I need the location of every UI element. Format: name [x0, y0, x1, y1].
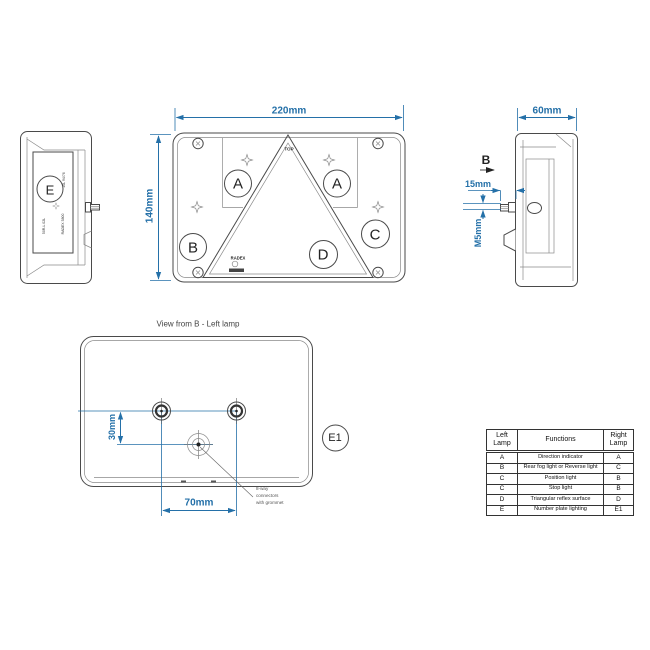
front-height-dimension-label: 140mm — [145, 189, 156, 223]
header-left-lamp: Left Lamp — [487, 430, 518, 452]
function-name: Triangular reflex surface — [518, 495, 604, 506]
mounting-stud-right-view — [501, 203, 516, 213]
connector-note-line: 8-way — [256, 486, 268, 491]
brand-label: RADEX — [231, 256, 246, 261]
dimension-m5 — [463, 194, 501, 219]
table-row: A Direction indicator A — [487, 452, 634, 464]
connector-note-line: connectors — [256, 493, 278, 498]
right-lamp-code: B — [604, 474, 634, 485]
table-row: D Triangular reflex surface D — [487, 495, 634, 506]
header-functions: Functions — [518, 430, 604, 452]
header-right-lamp: Right Lamp — [604, 430, 634, 452]
offset-dimension-label: 30mm — [107, 414, 117, 440]
right-lamp-code: B — [604, 484, 634, 495]
zone-label-d: D — [318, 247, 329, 264]
e1-mark-label: E1 — [328, 432, 341, 444]
zone-label-b: B — [188, 240, 198, 257]
spacing-dimension-label: 70mm — [185, 498, 214, 509]
technical-drawing-page: 220mm 140mm TOP A A B C D RADEX E 10L 94… — [0, 0, 650, 650]
left-lamp-code: A — [487, 452, 518, 464]
thread-dimension-label: M5mm — [473, 219, 483, 248]
function-name: Stop light — [518, 484, 604, 495]
table-row: E Number plate lighting E1 — [487, 505, 634, 516]
approval-marking: 10L 94/76 — [62, 172, 66, 187]
approval-marking: RADEX 5800 — [61, 214, 65, 235]
depth-dimension-label: 60mm — [533, 106, 562, 117]
drawing-lineart — [0, 0, 650, 650]
view-from-b — [78, 337, 349, 517]
table-row: B Rear fog light or Reverse light C — [487, 463, 634, 474]
view-from-b-title: View from B - Left lamp — [157, 320, 240, 329]
connector-note-line: with grommet — [256, 500, 284, 505]
right-side-view — [463, 108, 578, 287]
left-lamp-code: D — [487, 495, 518, 506]
stud-length-dimension-label: 15mm — [465, 179, 491, 189]
top-marker-label: TOP — [284, 147, 293, 152]
front-width-dimension-label: 220mm — [272, 106, 306, 117]
function-name: Number plate lighting — [518, 505, 604, 516]
right-lamp-code: A — [604, 452, 634, 464]
table-header-row: Left Lamp Functions Right Lamp — [487, 430, 634, 452]
right-lamp-code: D — [604, 495, 634, 506]
left-lamp-code: E — [487, 505, 518, 516]
mounting-stud-left-view — [86, 203, 100, 213]
right-lamp-code: E1 — [604, 505, 634, 516]
table-row: C Stop light B — [487, 484, 634, 495]
zone-label-a-right: A — [332, 176, 342, 193]
zone-label-c: C — [370, 227, 381, 244]
table-row: C Position light B — [487, 474, 634, 485]
function-name: Position light — [518, 474, 604, 485]
function-name: Rear fog light or Reverse light — [518, 463, 604, 474]
left-lamp-code: C — [487, 484, 518, 495]
right-lamp-code: C — [604, 463, 634, 474]
left-side-view — [21, 132, 100, 284]
e-mark-label: E — [46, 183, 55, 198]
function-name: Direction indicator — [518, 452, 604, 464]
view-direction-label: B — [482, 153, 491, 167]
left-lamp-code: C — [487, 474, 518, 485]
approval-marking: 50R-L 02L — [42, 218, 46, 234]
left-lamp-code: B — [487, 463, 518, 474]
bracket-tab — [504, 229, 516, 251]
lamp-functions-table: Left Lamp Functions Right Lamp A Directi… — [486, 429, 634, 516]
zone-label-a-left: A — [233, 176, 243, 193]
